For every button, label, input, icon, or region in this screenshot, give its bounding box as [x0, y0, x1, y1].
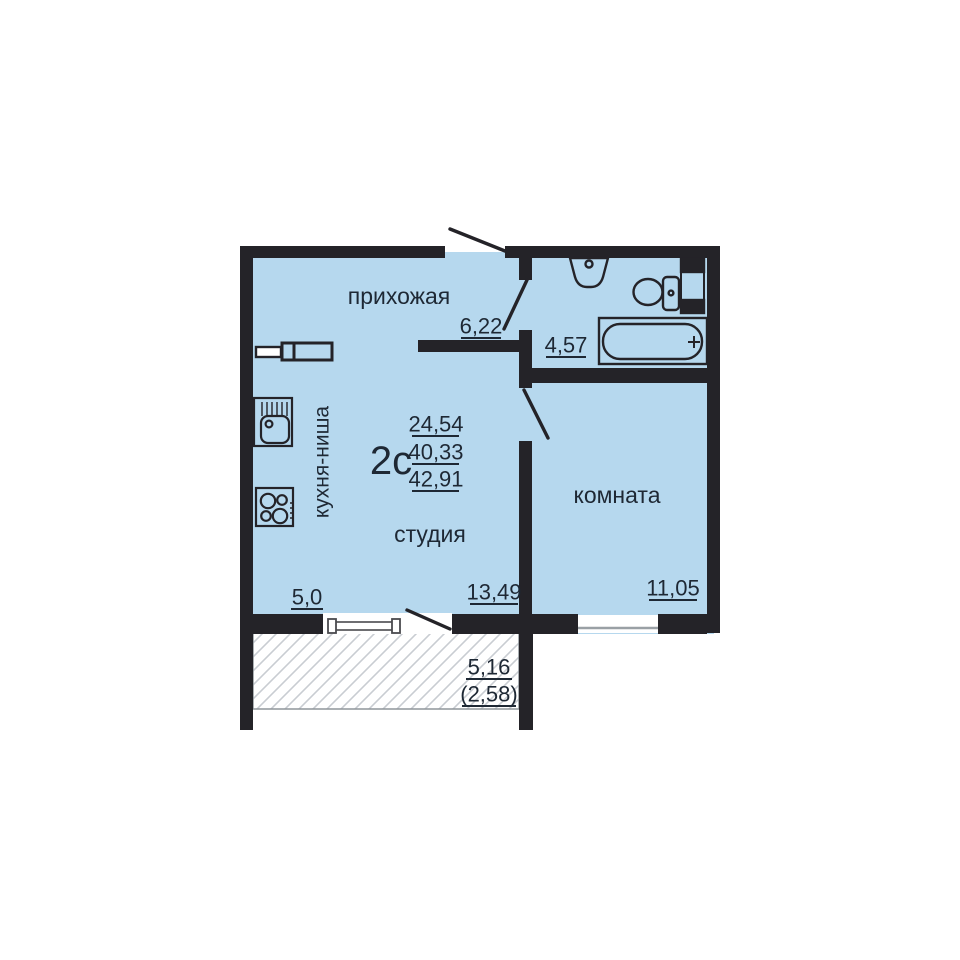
- wall-hallway-partition: [418, 340, 532, 352]
- wall-left: [240, 246, 253, 730]
- studio-window-cap-left: [328, 619, 336, 633]
- wall-right: [707, 246, 720, 633]
- kitchen-niche-area: 5,0: [292, 585, 323, 610]
- area-total-with-balcony: 42,91: [408, 467, 463, 492]
- wall-bottom-4: [658, 614, 707, 634]
- room-window-opening: [578, 615, 658, 633]
- wall-bottom-3: [532, 614, 578, 634]
- wall-bottom-2: [452, 614, 519, 634]
- entry-door-icon: [450, 229, 505, 251]
- studio-area: 13,49: [466, 580, 521, 605]
- room-window-icon: [578, 615, 658, 633]
- hallway-area: 6,22: [460, 314, 503, 339]
- floor-plan: прихожая 6,22 4,57 2с 24,54 40,33 42,91 …: [0, 0, 960, 960]
- wall-balcony-divider: [519, 633, 533, 730]
- room-label: комната: [574, 482, 661, 508]
- wall-bottom-1: [240, 614, 323, 634]
- wall-bathroom-jamb: [519, 256, 532, 280]
- wall-top-left: [240, 246, 445, 258]
- balcony-area-coefficient: (2,58): [460, 682, 517, 707]
- floor-plan-page: прихожая 6,22 4,57 2с 24,54 40,33 42,91 …: [0, 0, 960, 960]
- apartment-type-label: 2с: [370, 439, 412, 483]
- studio-window-icon: [323, 613, 452, 634]
- balcony-area: 5,16: [468, 655, 511, 680]
- area-living: 24,54: [408, 412, 463, 437]
- kitchen-niche-label: кухня-ниша: [311, 406, 334, 519]
- hallway-label: прихожая: [348, 283, 451, 309]
- wall-bathroom-bottom: [519, 368, 720, 383]
- studio-window-frame: [334, 622, 394, 630]
- wall-top-right: [505, 246, 720, 258]
- bathroom-area: 4,57: [545, 333, 588, 358]
- room-area: 11,05: [646, 576, 699, 601]
- studio-window-cap-right: [392, 619, 400, 633]
- area-total: 40,33: [408, 440, 463, 465]
- studio-label: студия: [394, 521, 466, 547]
